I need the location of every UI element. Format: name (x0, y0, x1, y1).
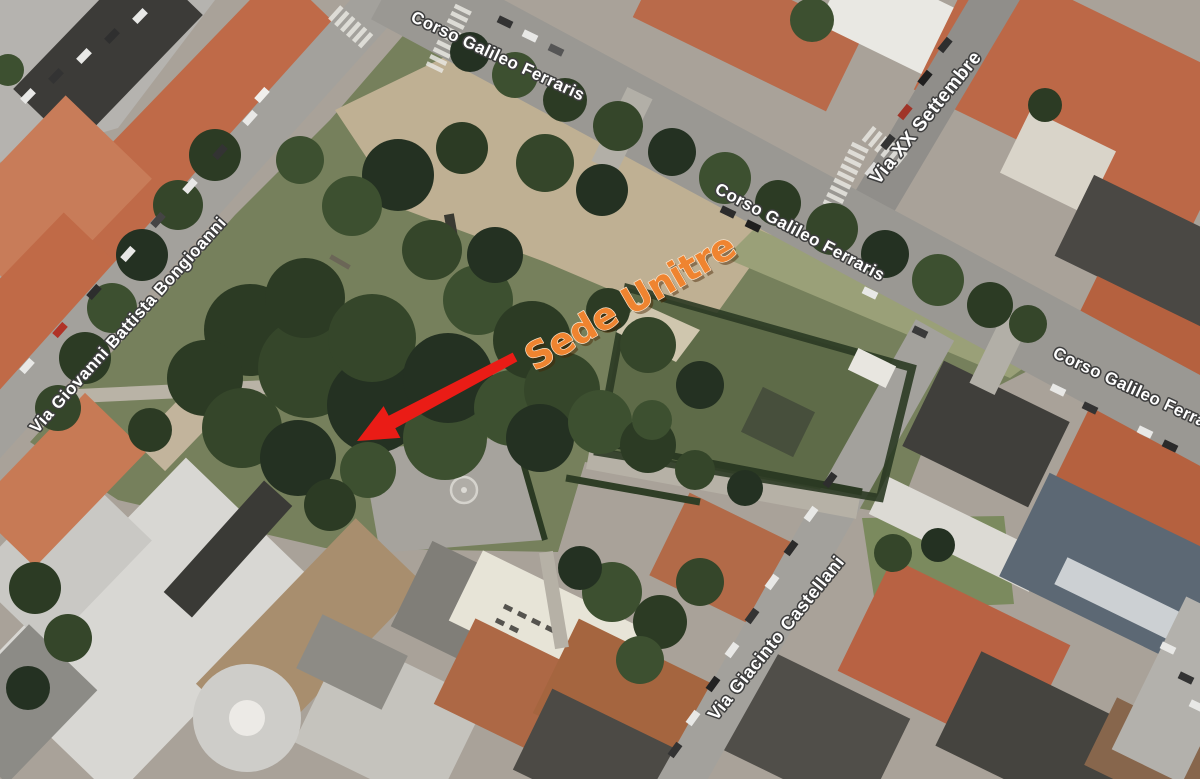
tree-canopy (593, 101, 643, 151)
tree-canopy (676, 361, 724, 409)
court-circle-dot (461, 487, 467, 493)
tree-canopy (467, 227, 523, 283)
tree-canopy (6, 666, 50, 710)
tree-canopy (276, 136, 324, 184)
tree-canopy (616, 636, 664, 684)
tree-canopy (967, 282, 1013, 328)
tree-canopy (558, 546, 602, 590)
round-tank-top (229, 700, 265, 736)
tree-canopy (304, 479, 356, 531)
tree-canopy (44, 614, 92, 662)
tree-canopy (506, 404, 574, 472)
tree-canopy (1009, 305, 1047, 343)
tree-canopy (576, 164, 628, 216)
tree-canopy (436, 122, 488, 174)
tree-canopy (9, 562, 61, 614)
tree-canopy (874, 534, 912, 572)
tree-canopy (790, 0, 834, 42)
tree-canopy (727, 470, 763, 506)
aerial-map-image: Corso Galileo Ferraris Corso Galileo Fer… (0, 0, 1200, 779)
tree-canopy (632, 400, 672, 440)
tree-canopy (322, 176, 382, 236)
tree-canopy (128, 408, 172, 452)
tree-canopy (921, 528, 955, 562)
tree-canopy (912, 254, 964, 306)
tree-canopy (676, 558, 724, 606)
tree-canopy (328, 294, 416, 382)
tree-canopy (675, 450, 715, 490)
tree-canopy (1028, 88, 1062, 122)
tree-canopy (648, 128, 696, 176)
satellite-map: Corso Galileo Ferraris Corso Galileo Fer… (0, 0, 1200, 779)
tree-canopy (516, 134, 574, 192)
tree-canopy (402, 220, 462, 280)
